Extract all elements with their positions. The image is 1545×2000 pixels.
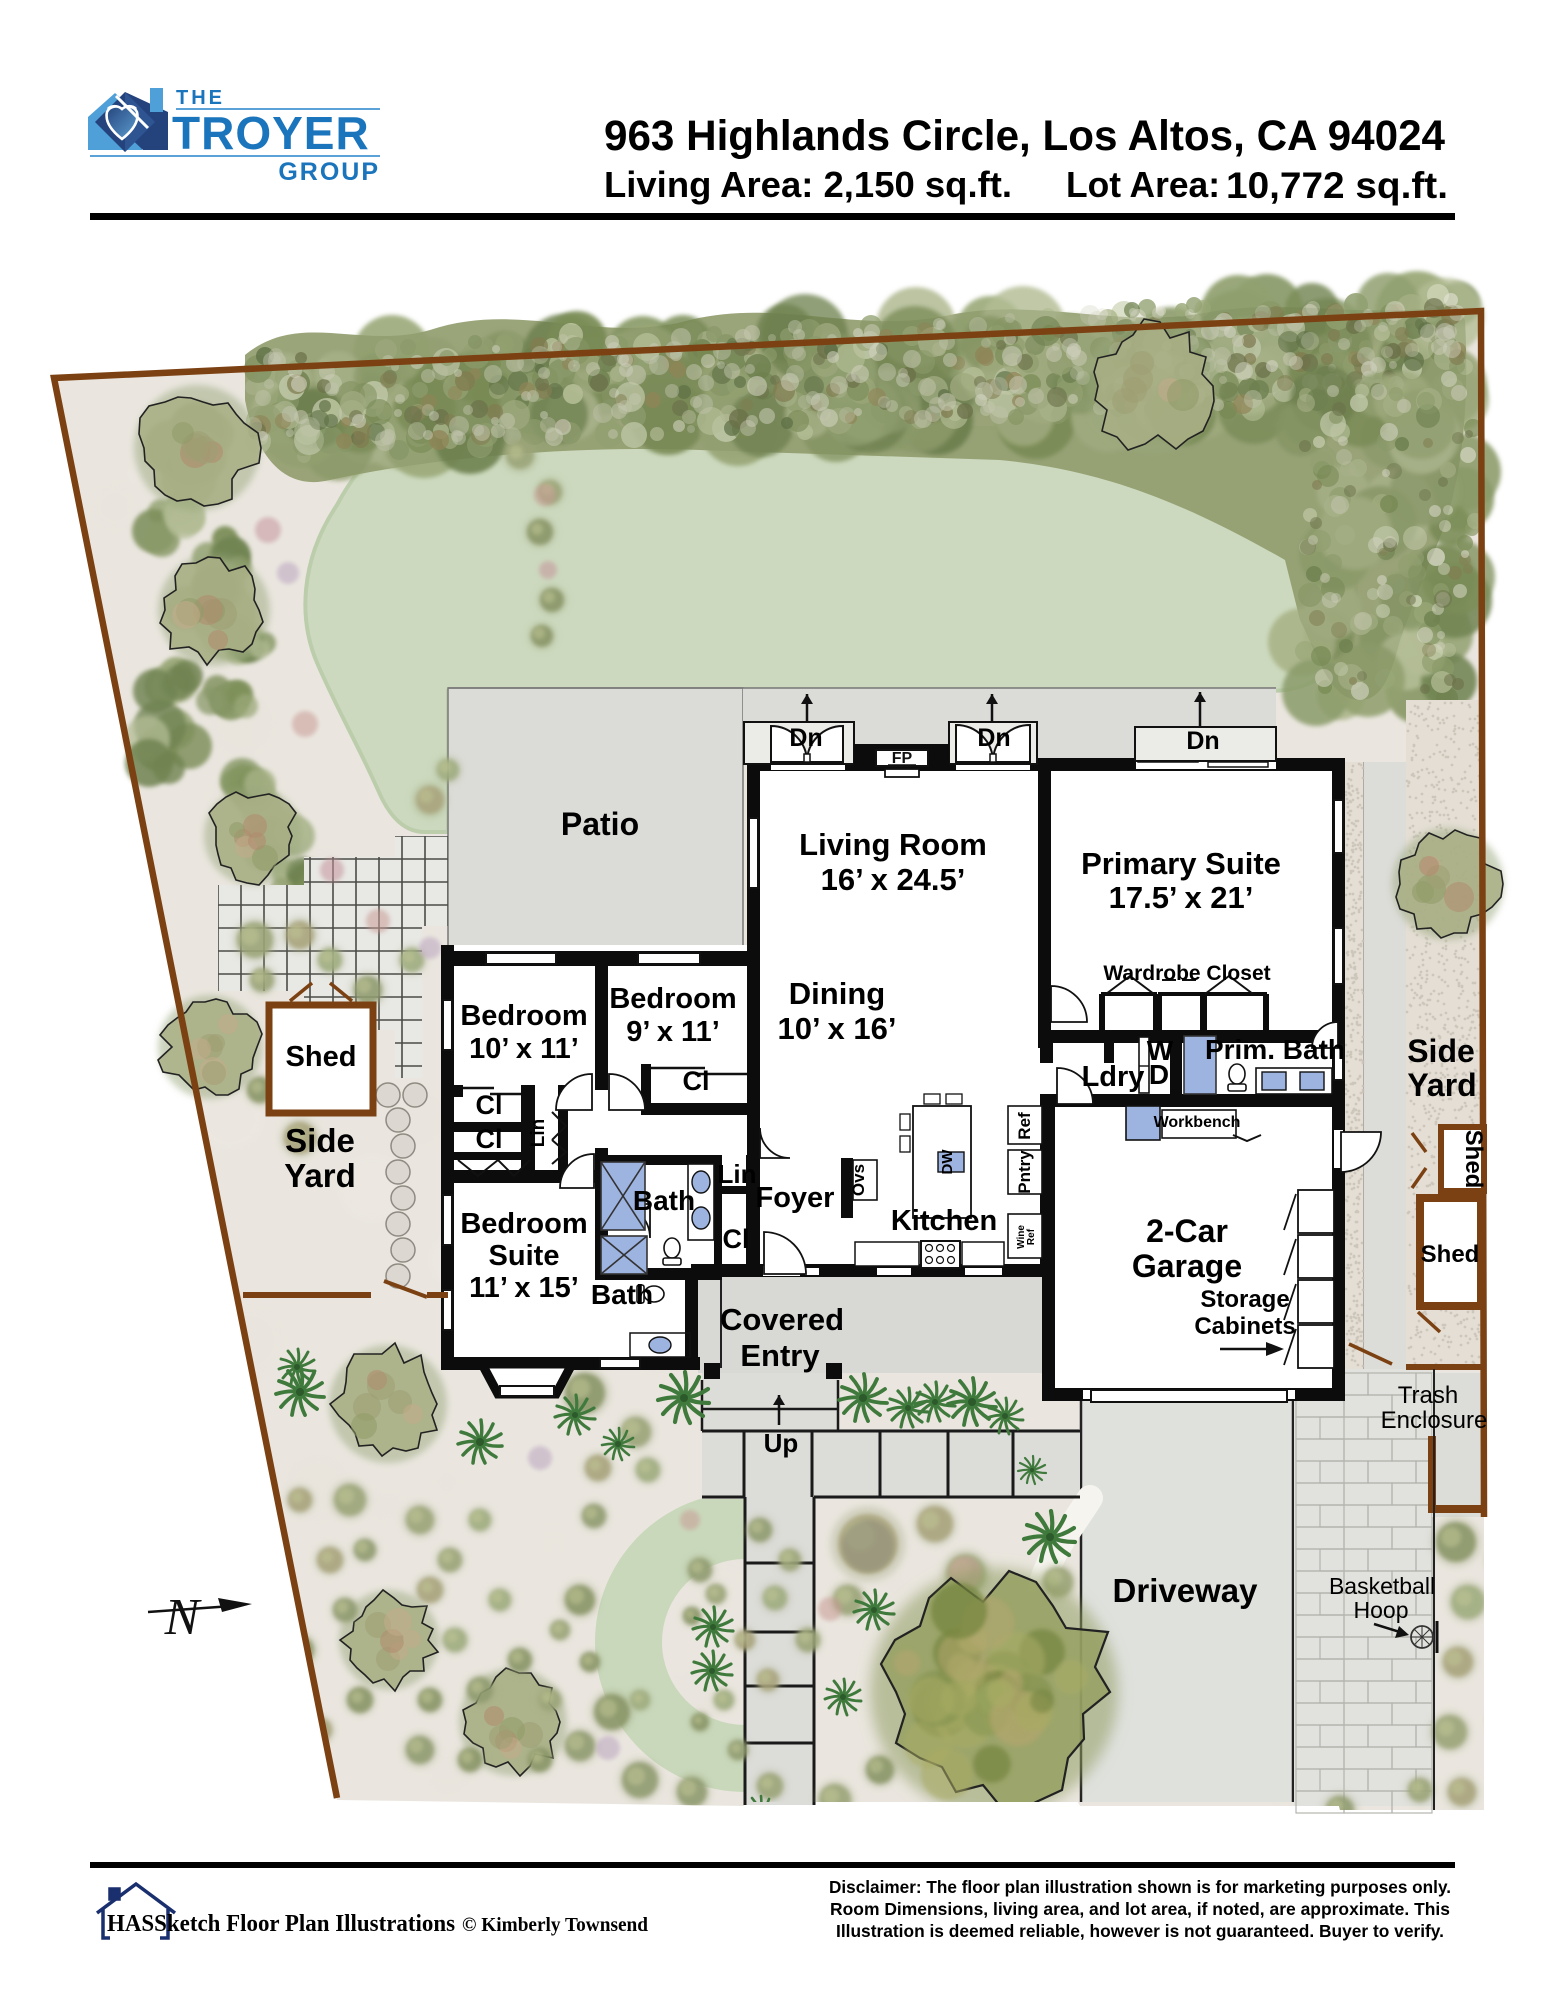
svg-text:Living Room: Living Room <box>799 827 987 862</box>
svg-text:Trash: Trash <box>1398 1382 1458 1409</box>
svg-text:Workbench: Workbench <box>1154 1114 1241 1131</box>
svg-text:Cl: Cl <box>476 1090 503 1120</box>
svg-text:Ovs: Ovs <box>849 1164 868 1196</box>
svg-text:Bath: Bath <box>633 1185 695 1216</box>
svg-text:Yard: Yard <box>1407 1067 1476 1103</box>
svg-text:10’ x 11’: 10’ x 11’ <box>469 1033 579 1065</box>
svg-text:Shed: Shed <box>286 1041 357 1073</box>
svg-text:Driveway: Driveway <box>1113 1572 1259 1609</box>
svg-text:Lin: Lin <box>528 1119 549 1148</box>
svg-text:16’ x 24.5’: 16’ x 24.5’ <box>821 862 966 897</box>
svg-text:Living Area: 2,150 sq.ft.: Living Area: 2,150 sq.ft. <box>604 164 1012 205</box>
svg-text:Dining: Dining <box>789 976 885 1011</box>
svg-text:Up: Up <box>764 1428 799 1458</box>
svg-text:Side: Side <box>285 1122 355 1159</box>
svg-text:11’ x 15’: 11’ x 15’ <box>469 1272 579 1304</box>
svg-text:Side: Side <box>1407 1033 1475 1069</box>
svg-text:Bath: Bath <box>591 1279 653 1310</box>
svg-text:N: N <box>164 1589 203 1646</box>
svg-text:Prim. Bath: Prim. Bath <box>1205 1034 1345 1065</box>
svg-text:HASSketch Floor Plan Illustrat: HASSketch Floor Plan Illustrations <box>107 1911 455 1937</box>
svg-text:Shed: Shed <box>1421 1241 1480 1268</box>
svg-text:2-Car: 2-Car <box>1146 1213 1228 1249</box>
svg-text:Cabinets: Cabinets <box>1194 1313 1295 1340</box>
svg-text:Dn: Dn <box>789 724 822 752</box>
svg-text:Bedroom: Bedroom <box>460 1208 587 1240</box>
svg-text:Covered: Covered <box>720 1302 844 1337</box>
svg-text:Suite: Suite <box>489 1240 560 1272</box>
svg-text:GROUP: GROUP <box>278 158 380 186</box>
svg-text:Bedroom: Bedroom <box>460 1000 587 1032</box>
svg-text:Ldry: Ldry <box>1082 1061 1145 1093</box>
svg-text:Ref: Ref <box>1015 1112 1034 1140</box>
svg-text:© Kimberly Townsend: © Kimberly Townsend <box>462 1914 648 1936</box>
svg-text:Enclosure: Enclosure <box>1381 1407 1488 1434</box>
svg-text:Pntry: Pntry <box>1015 1150 1034 1194</box>
svg-text:17.5’ x 21’: 17.5’ x 21’ <box>1109 880 1254 915</box>
svg-text:10,772 sq.ft.: 10,772 sq.ft. <box>1226 165 1448 206</box>
svg-text:Cl: Cl <box>723 1224 750 1254</box>
svg-text:Patio: Patio <box>561 806 639 842</box>
svg-text:Disclaimer: The floor plan ill: Disclaimer: The floor plan illustration … <box>829 1877 1451 1897</box>
svg-text:D: D <box>1149 1059 1169 1090</box>
svg-text:Garage: Garage <box>1132 1248 1242 1284</box>
svg-text:Ref: Ref <box>1026 1228 1037 1245</box>
svg-text:TROYER: TROYER <box>172 107 370 159</box>
svg-text:Illustration is deemed reliabl: Illustration is deemed reliable, however… <box>836 1921 1444 1941</box>
svg-text:Foyer: Foyer <box>756 1182 835 1214</box>
svg-text:Dn: Dn <box>1186 727 1219 755</box>
svg-text:10’ x 16’: 10’ x 16’ <box>778 1011 897 1046</box>
svg-text:Cl: Cl <box>476 1124 503 1154</box>
svg-text:Shed: Shed <box>1460 1130 1487 1189</box>
svg-text:DW: DW <box>939 1149 956 1175</box>
svg-text:Lot Area:: Lot Area: <box>1066 164 1220 205</box>
svg-text:963 Highlands Circle, Los Alto: 963 Highlands Circle, Los Altos, CA 9402… <box>604 112 1445 160</box>
svg-text:Yard: Yard <box>284 1157 356 1194</box>
svg-text:Cl: Cl <box>683 1066 710 1096</box>
svg-text:Storage: Storage <box>1200 1286 1289 1313</box>
svg-text:Bedroom: Bedroom <box>609 983 736 1015</box>
svg-text:Wardrobe Closet: Wardrobe Closet <box>1103 962 1270 985</box>
svg-text:9’ x 11’: 9’ x 11’ <box>626 1016 720 1048</box>
svg-text:Lin: Lin <box>718 1159 757 1189</box>
svg-text:Dn: Dn <box>977 724 1010 752</box>
svg-text:Hoop: Hoop <box>1354 1597 1409 1623</box>
svg-text:Primary Suite: Primary Suite <box>1081 846 1281 881</box>
svg-text:Basketball: Basketball <box>1329 1573 1435 1599</box>
svg-text:Kitchen: Kitchen <box>891 1205 997 1237</box>
svg-text:Room Dimensions, living area,: Room Dimensions, living area, and lot ar… <box>830 1899 1450 1919</box>
svg-text:THE: THE <box>176 87 225 109</box>
svg-text:Entry: Entry <box>740 1338 820 1373</box>
